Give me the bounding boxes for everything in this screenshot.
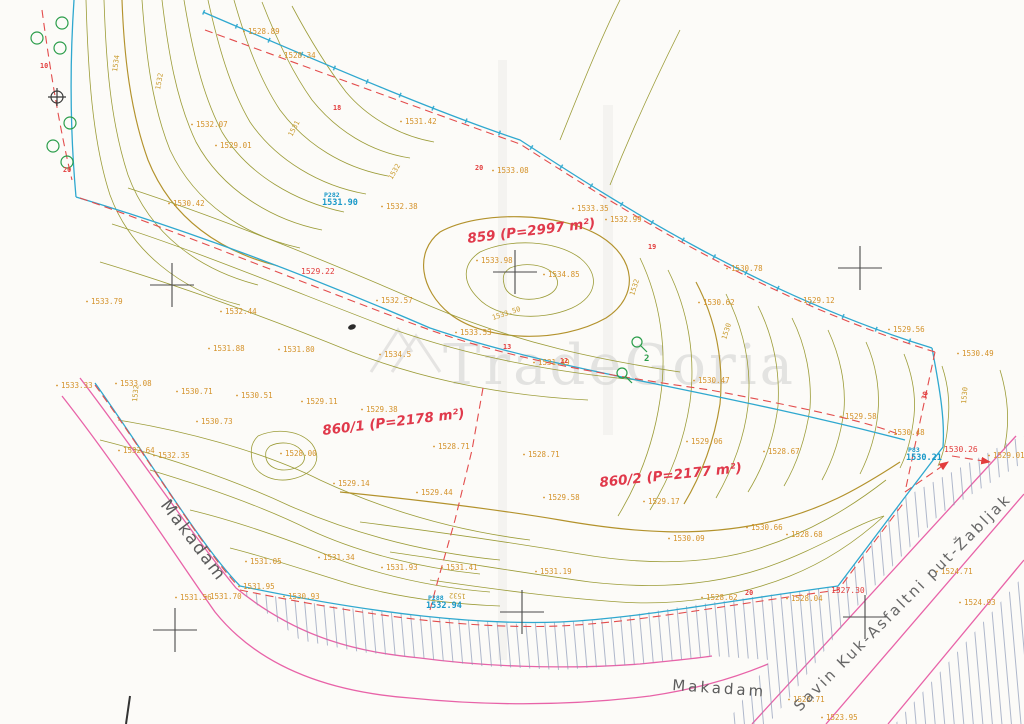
spot-point-dot xyxy=(543,274,545,276)
spot-point-dot xyxy=(492,170,494,172)
red-elevation-label: 1529.22 xyxy=(301,267,335,276)
spot-elevation-label: 1529.17 xyxy=(648,497,680,506)
spot-point-dot xyxy=(115,383,117,385)
boundary-point-number: 19 xyxy=(648,243,656,251)
spot-point-dot xyxy=(888,329,890,331)
spot-point-dot xyxy=(196,421,198,423)
vegetation-count-label: 2 xyxy=(644,354,649,364)
spot-elevation-label: 1531.70 xyxy=(210,592,242,601)
spot-elevation-label: 1530.51 xyxy=(241,391,273,400)
spot-point-dot xyxy=(416,492,418,494)
spot-elevation-label: 1533.53 xyxy=(460,328,492,337)
spot-point-dot xyxy=(455,332,457,334)
tree-symbol xyxy=(56,17,68,29)
benchmark-elevation-label: 1530.21 xyxy=(906,453,942,463)
spot-point-dot xyxy=(153,455,155,457)
spot-elevation-label: 1533.98 xyxy=(481,256,513,265)
spot-point-dot xyxy=(535,571,537,573)
spot-elevation-label: 1532.07 xyxy=(196,120,228,129)
spot-elevation-label: 1528.04 xyxy=(791,594,823,603)
spot-point-dot xyxy=(333,483,335,485)
spot-point-dot xyxy=(278,349,280,351)
survey-map-sheet: TradeGoria xyxy=(0,0,1024,724)
spot-elevation-label: 1532.44 xyxy=(225,307,257,316)
spot-point-dot xyxy=(686,441,688,443)
spot-point-dot xyxy=(361,409,363,411)
spot-point-dot xyxy=(523,454,525,456)
spot-point-dot xyxy=(318,557,320,559)
spot-elevation-label: 1529.01 xyxy=(993,451,1024,460)
contour-index-label: 1534 xyxy=(111,54,121,72)
spot-point-dot xyxy=(381,206,383,208)
red-elevation-label: 1527.30 xyxy=(831,586,865,595)
spot-point-dot xyxy=(86,301,88,303)
spot-elevation-label: 1530.49 xyxy=(962,349,994,358)
boundary-point-number: 13 xyxy=(503,343,511,351)
contour-labels-layer: 15341532153115321533.5015321530153015321… xyxy=(111,54,969,600)
spot-point-dot xyxy=(220,311,222,313)
spot-elevation-label: 1532.35 xyxy=(158,451,190,460)
spot-point-dot xyxy=(701,597,703,599)
spot-point-dot xyxy=(379,354,381,356)
spot-point-dot xyxy=(786,534,788,536)
spot-elevation-label: 1528.71 xyxy=(438,442,470,451)
boundary-point-number: 10 xyxy=(40,62,48,70)
spot-elevation-label: 1533.33 xyxy=(61,381,93,390)
spot-point-dot xyxy=(957,353,959,355)
boundary-point-number: 20 xyxy=(63,166,71,174)
spot-elevation-label: 1531.95 xyxy=(243,582,275,591)
spot-point-dot xyxy=(763,451,765,453)
spot-elevation-label: 1530.62 xyxy=(703,298,735,307)
spot-elevation-label: 1531.41 xyxy=(446,563,478,572)
spot-point-dot xyxy=(381,567,383,569)
spot-point-dot xyxy=(441,567,443,569)
spot-point-dot xyxy=(821,717,823,719)
boundary-point-number: 30 xyxy=(920,391,930,401)
spot-point-dot xyxy=(280,453,282,455)
spot-point-dot xyxy=(215,145,217,147)
spot-point-dot xyxy=(788,699,790,701)
vegetation-labels-layer: 2 xyxy=(644,354,649,364)
point-marker xyxy=(347,323,356,330)
spot-point-dot xyxy=(988,455,990,457)
spot-point-dot xyxy=(533,362,535,364)
contour-index-label: 1532 xyxy=(131,385,140,402)
spot-elevation-label: 1531.56 xyxy=(180,593,212,602)
spot-elevation-label: 1533.08 xyxy=(497,166,529,175)
spot-elevation-label: 1530.73 xyxy=(201,417,233,426)
watermark: TradeGoria xyxy=(371,330,796,398)
parcel-label: 859 (P=2997 m²) xyxy=(467,215,597,247)
survey-point-symbol xyxy=(48,88,66,106)
spot-point-dot xyxy=(283,596,285,598)
spot-elevation-label: 1532.57 xyxy=(381,296,413,305)
spot-point-dot xyxy=(376,300,378,302)
spot-elevation-label: 1530.47 xyxy=(698,376,730,385)
spot-elevation-label: 1531.93 xyxy=(386,563,418,572)
spot-point-dot xyxy=(693,380,695,382)
spot-elevation-label: 1529.44 xyxy=(421,488,453,497)
spot-point-dot xyxy=(798,300,800,302)
spot-elevation-label: 1528.67 xyxy=(768,447,800,456)
spot-point-dot xyxy=(698,302,700,304)
spot-elevation-label: 1529.14 xyxy=(338,479,370,488)
road-label: Makadam xyxy=(672,676,767,701)
spot-elevation-label: 1530.66 xyxy=(751,523,783,532)
spot-elevation-label: 1533.79 xyxy=(91,297,123,306)
spot-elevation-label: 1530.93 xyxy=(288,592,320,601)
spot-point-dot xyxy=(56,385,58,387)
spot-point-dot xyxy=(238,586,240,588)
spot-elevation-label: 1529.06 xyxy=(691,437,723,446)
spot-elevation-label: 1529.01 xyxy=(220,141,252,150)
spot-point-dot xyxy=(668,538,670,540)
spot-elevation-label: 1531.42 xyxy=(405,117,437,126)
watermark-text: TradeGoria xyxy=(443,333,796,398)
spot-point-dot xyxy=(168,203,170,205)
spot-point-dot xyxy=(433,446,435,448)
spot-elevation-label: 1529.58 xyxy=(845,412,877,421)
tree-symbol xyxy=(47,140,59,152)
spot-elevation-label: 1529.56 xyxy=(893,325,925,334)
red-elevation-label: 1530.26 xyxy=(944,445,978,454)
benchmark-elevation-label: 1531.90 xyxy=(322,198,358,208)
spot-elevation-label: 1531.80 xyxy=(283,345,315,354)
spot-point-dot xyxy=(236,395,238,397)
spot-point-dot xyxy=(959,602,961,604)
spot-point-dot xyxy=(572,208,574,210)
spot-elevation-label: 1529.58 xyxy=(548,493,580,502)
spot-elevation-label: 1528.00 xyxy=(285,449,317,458)
benchmark-elevation-label: 1532.94 xyxy=(426,601,462,611)
spot-point-dot xyxy=(118,450,120,452)
boundary-point-number: 20 xyxy=(745,589,753,597)
spot-point-dot xyxy=(543,497,545,499)
contour-index-label: 1530 xyxy=(960,387,969,404)
spot-elevation-label: 1528.68 xyxy=(791,530,823,539)
road-label: Makadam xyxy=(156,496,230,585)
tree-symbol xyxy=(64,117,76,129)
contour-index-label: 1532 xyxy=(449,591,466,600)
boundary-point-number: 20 xyxy=(475,164,483,172)
spot-point-dot xyxy=(643,501,645,503)
spot-elevation-label: 1532.64 xyxy=(123,446,155,455)
parcel-label: 860/2 (P=2177 m²) xyxy=(599,460,743,491)
spot-point-dot xyxy=(605,219,607,221)
spot-point-dot xyxy=(175,597,177,599)
spot-elevation-label: 1528.34 xyxy=(284,51,316,60)
spot-point-dot xyxy=(279,55,281,57)
spot-elevation-label: 1530.71 xyxy=(181,387,213,396)
spot-elevation-label: 1530.78 xyxy=(731,264,763,273)
contour-index-label: 1532 xyxy=(154,72,165,90)
survey-map-canvas: TradeGoria xyxy=(0,0,1024,724)
spot-elevation-label: 1528.62 xyxy=(706,593,738,602)
contour-index-label: 1531 xyxy=(287,119,302,138)
spot-elevation-label: 1531.34 xyxy=(323,553,355,562)
contour-index-label: 1532 xyxy=(628,278,641,297)
boundary-point-number: 12 xyxy=(560,357,568,365)
spot-elevation-label: 1534.5 xyxy=(384,350,411,359)
spot-point-dot xyxy=(746,527,748,529)
spot-elevation-label: 1528.71 xyxy=(528,450,560,459)
spot-elevation-label: 1531.88 xyxy=(213,344,245,353)
spot-elevation-label: 1532.99 xyxy=(610,215,642,224)
contour-lines-layer xyxy=(86,0,1007,606)
spot-elevation-label: 1529.11 xyxy=(306,397,338,406)
spot-elevation-label: 1530.42 xyxy=(173,199,205,208)
spot-point-dot xyxy=(208,348,210,350)
spot-point-dot xyxy=(176,391,178,393)
spot-elevation-label: 1534.85 xyxy=(548,270,580,279)
edge-tick xyxy=(126,696,130,724)
spot-point-dot xyxy=(205,596,207,598)
spot-point-dot xyxy=(243,31,245,33)
spot-point-dot xyxy=(191,124,193,126)
spot-elevation-label: 1523.95 xyxy=(826,713,858,722)
contour-index-label: 1532 xyxy=(387,162,402,181)
spot-elevation-label: 1532.38 xyxy=(386,202,418,211)
spot-point-dot xyxy=(245,561,247,563)
spot-point-dot xyxy=(888,432,890,434)
benchmark-labels-layer: P2821531.90P2881532.94P831530.21 xyxy=(322,191,942,611)
spot-elevation-label: 1524.93 xyxy=(964,598,996,607)
tree-symbol xyxy=(54,42,66,54)
spot-elevation-label: 1530.48 xyxy=(893,428,925,437)
spot-elevation-label: 1529.12 xyxy=(803,296,835,305)
spot-elevation-label: 1533.35 xyxy=(577,204,609,213)
spot-point-dot xyxy=(726,268,728,270)
spot-elevation-label: 1531.19 xyxy=(540,567,572,576)
spot-elevation-label: 1530.09 xyxy=(673,534,705,543)
spot-point-dot xyxy=(476,260,478,262)
spot-elevation-label: 1529.38 xyxy=(366,405,398,414)
spot-point-dot xyxy=(840,416,842,418)
boundary-point-number: 18 xyxy=(333,104,341,112)
spot-point-dot xyxy=(786,598,788,600)
spot-elevation-label: 1531.05 xyxy=(250,557,282,566)
spot-point-dot xyxy=(301,401,303,403)
tree-symbol xyxy=(31,32,43,44)
spot-elevation-label: 1528.89 xyxy=(248,27,280,36)
spot-point-dot xyxy=(400,121,402,123)
